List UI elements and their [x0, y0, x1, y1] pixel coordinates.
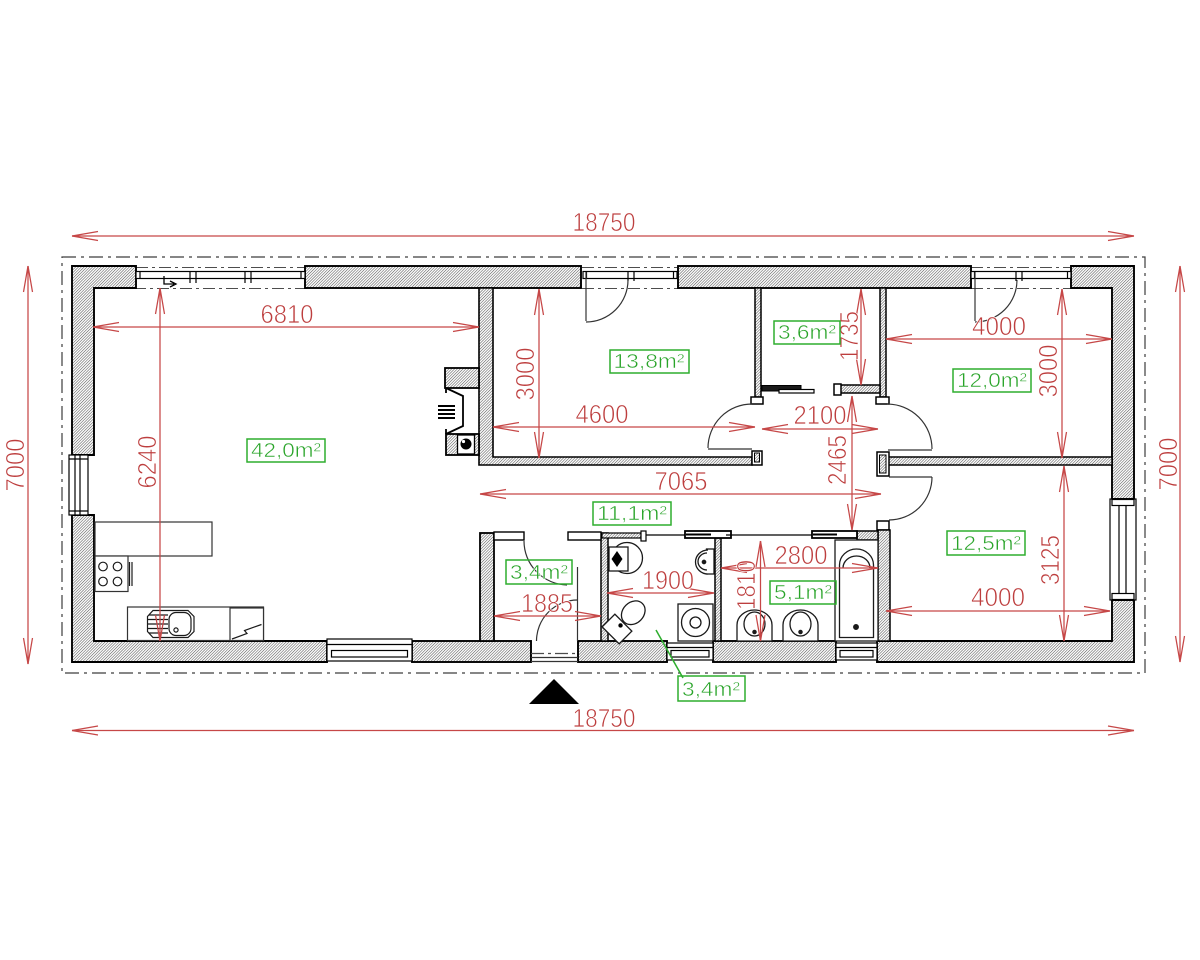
- svg-text:2800: 2800: [775, 540, 828, 570]
- svg-text:3,4m²: 3,4m²: [510, 562, 568, 584]
- svg-text:6810: 6810: [261, 299, 314, 329]
- svg-text:18750: 18750: [573, 703, 636, 733]
- svg-text:3000: 3000: [1033, 345, 1063, 398]
- svg-text:7000: 7000: [0, 439, 30, 492]
- svg-text:4000: 4000: [971, 582, 1025, 612]
- svg-text:1900: 1900: [642, 565, 694, 595]
- svg-text:12,0m²: 12,0m²: [957, 370, 1027, 392]
- svg-text:6240: 6240: [132, 436, 162, 489]
- svg-text:12,5m²: 12,5m²: [951, 533, 1021, 555]
- svg-text:11,1m²: 11,1m²: [597, 503, 667, 525]
- svg-text:1885: 1885: [521, 588, 573, 618]
- svg-text:3125: 3125: [1035, 535, 1065, 585]
- svg-text:4000: 4000: [972, 311, 1026, 341]
- svg-text:3,6m²: 3,6m²: [778, 322, 836, 344]
- svg-text:18750: 18750: [573, 207, 636, 237]
- svg-text:42,0m²: 42,0m²: [251, 440, 321, 462]
- svg-text:1735: 1735: [834, 311, 864, 361]
- svg-text:4600: 4600: [576, 399, 629, 429]
- svg-text:7065: 7065: [655, 466, 708, 496]
- svg-text:3000: 3000: [510, 348, 540, 401]
- svg-text:1810: 1810: [731, 560, 761, 610]
- svg-text:7000: 7000: [1153, 438, 1183, 491]
- svg-text:2100: 2100: [794, 400, 847, 430]
- svg-text:3,4m²: 3,4m²: [682, 679, 740, 701]
- svg-text:13,8m²: 13,8m²: [614, 351, 685, 373]
- svg-text:2465: 2465: [822, 435, 852, 485]
- svg-text:5,1m²: 5,1m²: [774, 582, 832, 604]
